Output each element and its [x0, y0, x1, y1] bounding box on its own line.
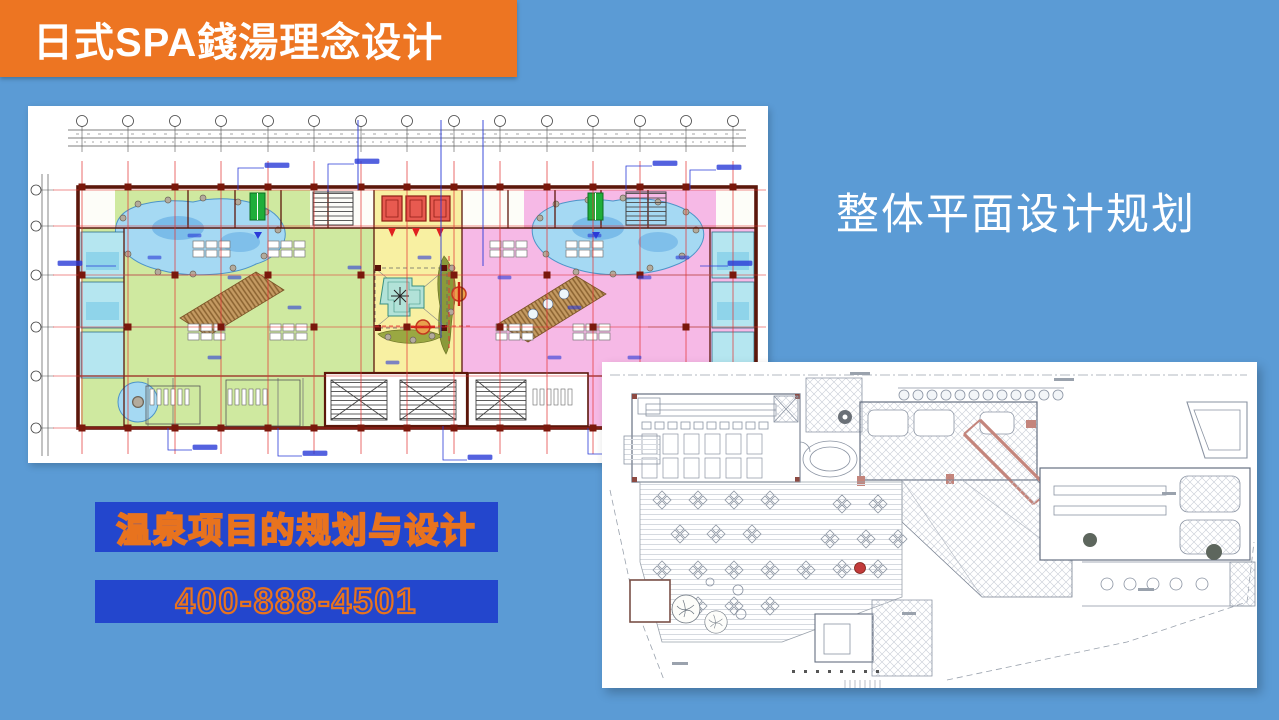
slide-title: 日式SPA錢湯理念设计 — [33, 10, 443, 68]
promo-phone-text: 400-888-4501 — [176, 582, 418, 622]
title-banner: 日式SPA錢湯理念设计 — [0, 0, 517, 77]
upper-hall — [860, 388, 1064, 480]
slide: 日式SPA錢湯理念设计 整体平面设计规划 — [0, 0, 1279, 720]
dimension-grid — [68, 126, 746, 152]
promo-title-text: 温泉项目的规划与设计 — [117, 503, 477, 552]
promo-banner-title: 温泉项目的规划与设计 — [95, 502, 498, 552]
elevator-left-icon — [250, 193, 265, 220]
detail-floor-plan-image — [602, 362, 1257, 688]
left-dimension — [32, 174, 54, 456]
section-heading: 整体平面设计规划 — [836, 180, 1196, 242]
entrance-boxes — [382, 196, 450, 237]
column-bubbles — [77, 116, 739, 127]
detail-floor-plan-svg — [602, 362, 1257, 688]
row-bubbles — [31, 185, 41, 433]
entrance-garden — [803, 378, 862, 477]
promo-banner-phone: 400-888-4501 — [95, 580, 498, 623]
elevator-right-icon — [588, 193, 603, 220]
private-room-block — [624, 394, 810, 482]
